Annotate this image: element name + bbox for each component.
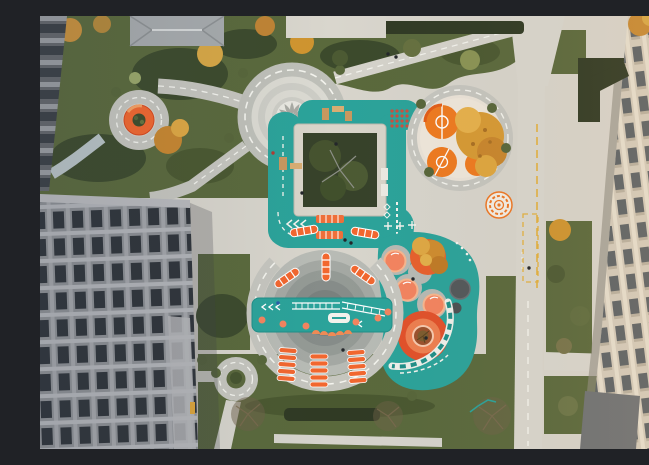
light-wash (40, 16, 649, 449)
aerial-photo: Aerial drone view of a residential court… (40, 16, 649, 449)
